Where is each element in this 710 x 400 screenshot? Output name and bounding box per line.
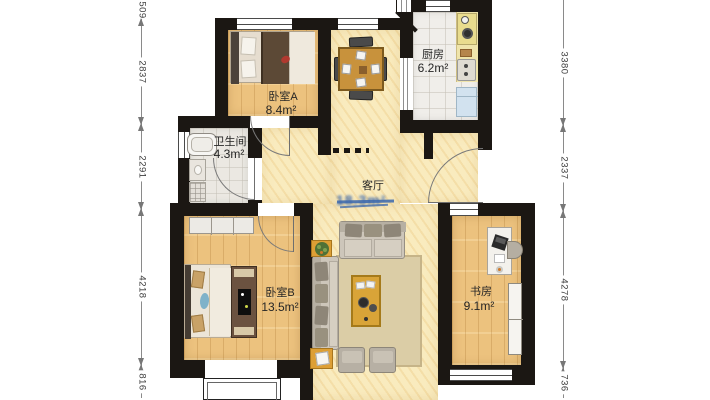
sofa-cushion: [314, 306, 328, 326]
wall: [215, 18, 228, 116]
cabinet-shelf: [234, 327, 254, 335]
sofa-cushion: [315, 328, 328, 347]
ottoman-cushion: [342, 351, 362, 363]
opening-marker: [333, 148, 369, 153]
desk-paper: [494, 254, 505, 263]
sofa-seat: [374, 239, 402, 257]
bay-window-frame: [207, 382, 277, 400]
floor-plan: 509 2837 2291 4218 816 3380 2337 4278 73…: [0, 0, 710, 400]
tv-cabinet: [231, 266, 257, 338]
table-centerpiece: [359, 66, 367, 74]
door-leaf: [289, 116, 290, 156]
side-table: [311, 240, 332, 257]
sofa-cushion: [384, 224, 402, 238]
cabinet: [508, 283, 522, 355]
sofa: [339, 221, 405, 259]
dimension-segment: 736: [563, 368, 564, 398]
side-table: [310, 348, 333, 369]
wall: [424, 133, 433, 159]
table-bowl-icon: [358, 297, 369, 308]
washbasin-icon: [194, 165, 202, 175]
dimension-segment: 2291: [141, 124, 142, 209]
sofa-cushion: [314, 262, 328, 282]
plant-icon: [315, 242, 329, 256]
stove: [457, 13, 477, 45]
plant-flower: [320, 251, 323, 254]
desk-plant-icon: [496, 266, 503, 273]
dimension-segment: 2837: [141, 19, 142, 124]
wardrobe: [189, 217, 254, 234]
room-area-living-obscured: 18.3m²: [336, 192, 402, 212]
ottoman-cushion: [373, 351, 393, 363]
dining-chair: [349, 90, 373, 101]
wall: [438, 203, 452, 385]
sofa-cushion: [315, 284, 328, 303]
place-setting: [355, 50, 366, 60]
room-area-bathroom: 4.3m²: [214, 147, 245, 161]
room-area-kitchen: 6.2m²: [418, 61, 449, 75]
tv-light-icon: [245, 305, 248, 308]
door-leaf: [293, 216, 294, 252]
wall: [478, 0, 492, 150]
bed-sheet: [289, 32, 315, 84]
ottoman: [369, 347, 396, 373]
tv-icon: [238, 289, 251, 315]
table-bowl-icon: [369, 304, 377, 312]
kitchen-sink: [457, 59, 476, 81]
bed-pillow: [240, 59, 256, 78]
room-area-bedroom-b: 13.5m²: [261, 300, 298, 314]
dimension-label: 816: [136, 370, 147, 393]
cabinet-shelf: [234, 269, 254, 277]
window: [426, 0, 450, 12]
room-label-kitchen: 厨房: [422, 46, 444, 62]
stove-burner-icon: [462, 28, 473, 39]
bed: [230, 31, 314, 83]
sofa-cushion: [364, 224, 382, 237]
plant-leaf: [323, 248, 327, 252]
study-door-opening: [450, 203, 478, 216]
cutting-board: [460, 49, 472, 57]
tv-light-icon: [241, 293, 244, 296]
dimension-segment: 4218: [141, 209, 142, 365]
window: [338, 18, 378, 30]
bay-window: [203, 378, 281, 400]
door-opening: [397, 0, 411, 12]
bathroom-vanity: [189, 159, 206, 181]
bed: [184, 264, 231, 338]
dimension-label: 736: [558, 371, 569, 394]
table-item: [366, 280, 376, 288]
cabinet-shelf-line: [509, 319, 523, 320]
plant-leaf: [317, 245, 321, 249]
table-item: [364, 317, 368, 321]
room-label-study: 书房: [470, 283, 492, 299]
place-setting: [355, 77, 366, 87]
sink-drain-icon: [464, 72, 468, 76]
bathtub-basin: [191, 137, 213, 152]
wall: [170, 203, 184, 378]
sofa-seat: [344, 239, 372, 257]
obscured-area-text: 18.3m²: [336, 192, 386, 208]
bed-pillow: [240, 36, 256, 55]
ottoman: [338, 347, 365, 373]
fridge: [456, 87, 477, 117]
stove-clock-icon: [461, 16, 469, 24]
dimension-arrow-icon: [560, 124, 566, 132]
sofa: [312, 256, 339, 350]
room-label-living: 客厅: [362, 177, 384, 193]
window: [237, 18, 292, 30]
laptop-screen: [495, 237, 506, 245]
room-area-bedroom-a: 8.4m²: [266, 103, 297, 117]
wall: [521, 203, 535, 385]
dimension-label: 2337: [558, 153, 569, 182]
bed-blanket: [209, 268, 231, 336]
door-opening: [258, 203, 294, 216]
dimension-label: 4218: [136, 272, 147, 301]
table-item: [356, 282, 366, 290]
bed-pillow: [191, 270, 205, 289]
wall: [400, 120, 480, 133]
dimension-arrow-icon: [138, 123, 144, 131]
sliding-door-track: [403, 58, 404, 110]
dining-chair: [349, 36, 373, 47]
room-label-bedroom-b: 卧室B: [265, 284, 294, 300]
dimension-label: 4278: [558, 275, 569, 304]
wardrobe-divider: [211, 218, 212, 235]
desk-plant-flower: [498, 268, 501, 271]
sofa-seat: [329, 261, 338, 347]
wardrobe-divider: [233, 218, 234, 235]
bed-pillow: [191, 314, 205, 333]
room-area-study: 9.1m²: [464, 299, 495, 313]
dimension-segment: 816: [141, 365, 142, 398]
place-setting: [342, 64, 352, 75]
dimension-segment: 509: [141, 0, 142, 19]
bed-headboard: [185, 265, 191, 339]
bathtub: [187, 133, 217, 156]
dimension-label: 2291: [136, 152, 147, 181]
table-item: [315, 351, 330, 366]
dimension-segment: 4278: [563, 211, 564, 368]
washing-machine: [189, 182, 206, 202]
window-opening: [205, 360, 277, 378]
dimension-arrow-icon: [560, 210, 566, 218]
dimension-arrow-icon: [138, 208, 144, 216]
room-label-bedroom-a: 卧室A: [268, 88, 297, 104]
place-setting: [371, 64, 381, 75]
dining-table: [338, 47, 384, 91]
coffee-table: [351, 275, 381, 327]
dimension-label: 3380: [558, 48, 569, 77]
door-leaf: [254, 158, 255, 200]
fridge-door-line: [457, 96, 478, 97]
door-frame-line: [406, 0, 407, 12]
bed-headboard: [231, 32, 239, 84]
wall: [318, 18, 331, 155]
door-frame-line: [401, 0, 402, 12]
dimension-segment: 2337: [563, 125, 564, 211]
sofa-cushion: [345, 224, 363, 238]
sliding-door-track: [407, 58, 408, 110]
window: [450, 369, 512, 381]
dimension-arrow-icon: [138, 18, 144, 26]
dimension-segment: 3380: [563, 0, 564, 125]
sink-drain-icon: [464, 64, 468, 68]
dimension-label: 2837: [136, 57, 147, 86]
